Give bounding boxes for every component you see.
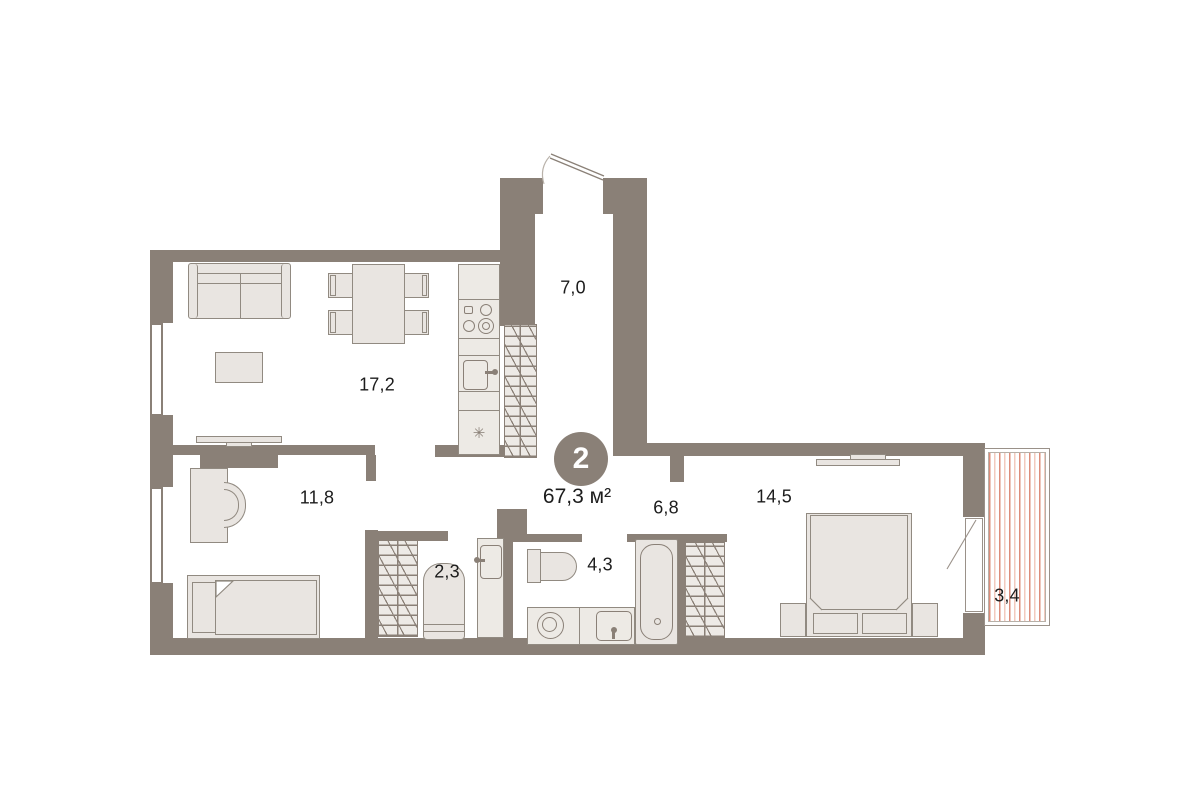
washing-machine-drum-inner — [542, 617, 557, 632]
chair-backrest — [330, 275, 336, 296]
bed-double-duvet — [810, 515, 908, 610]
sofa-arm-right — [281, 264, 290, 318]
wardrobe-corridor — [685, 542, 725, 638]
tv-bedroom — [816, 459, 900, 466]
wall-room2-door-stub — [366, 455, 376, 481]
kitchen-sink-bowl — [463, 360, 488, 390]
kitchen-counter-low — [458, 391, 500, 412]
wall-storage-bath-divider — [504, 533, 513, 638]
dining-chair-1 — [328, 273, 353, 298]
kitchen-counter-top — [458, 264, 500, 301]
wall-left-bottom — [150, 583, 173, 638]
tv-living-stand — [226, 442, 252, 447]
wardrobe-hall — [504, 324, 537, 458]
wall-living-divider — [150, 445, 375, 455]
sofa-arm-left — [189, 264, 198, 318]
label-bathroom: 4,3 — [587, 555, 613, 576]
stove-burner-1 — [464, 306, 473, 314]
total-area-label: 67,3 м² — [543, 485, 611, 509]
chair-backrest — [422, 275, 428, 296]
bathroom-sink — [596, 611, 632, 641]
fridge: ✳ — [458, 410, 500, 455]
bathroom-sink-faucet-knob — [611, 627, 617, 633]
bath-counter-divider — [579, 608, 580, 644]
sofa — [188, 263, 291, 319]
kitchen-sink-unit — [458, 355, 500, 393]
bed-pillow-left — [813, 613, 858, 634]
wall-stub-corridor — [670, 456, 684, 482]
label-bedroom-small: 11,8 — [300, 488, 335, 509]
bed-pillow-right — [862, 613, 907, 634]
dining-chair-4 — [404, 310, 429, 335]
wall-living-divider-pier — [200, 455, 278, 468]
toilet-bowl — [540, 552, 577, 581]
water-heater-line-2 — [424, 631, 464, 632]
dining-table — [352, 264, 405, 344]
kitchen-stove — [458, 299, 500, 340]
chair-backrest — [330, 312, 336, 333]
label-entrance-hall: 7,0 — [560, 278, 586, 299]
toilet-tank — [527, 549, 541, 583]
label-balcony: 3,4 — [994, 586, 1020, 607]
stove-burner-3 — [463, 320, 475, 332]
bathtub-inner — [640, 544, 673, 640]
chair-backrest — [422, 312, 428, 333]
rooms-count-badge: 2 — [554, 432, 608, 486]
stove-burner-2 — [480, 304, 492, 316]
wall-entry-jamb-right — [603, 178, 647, 214]
washing-machine-drum — [537, 612, 564, 639]
label-living-kitchen: 17,2 — [359, 375, 395, 396]
bathtub — [635, 539, 678, 645]
balcony-door — [965, 518, 983, 612]
nightstand-right — [912, 603, 938, 637]
sofa-seat-divider — [240, 273, 241, 318]
entry-door-arc — [542, 156, 550, 184]
wall-entry-jamb-left — [500, 178, 543, 214]
bed-single-mattress — [215, 580, 317, 635]
wall-hall-right — [613, 212, 647, 448]
entry-door-leaf-2 — [550, 158, 603, 180]
dining-chair-3 — [404, 273, 429, 298]
nightstand-left — [780, 603, 806, 637]
window-living — [150, 323, 163, 415]
bathtub-drain — [654, 618, 661, 625]
fridge-snowflake-icon: ✳ — [473, 424, 486, 442]
wall-left-top — [150, 250, 173, 323]
coffee-table — [215, 352, 263, 383]
rooms-count: 2 — [573, 442, 590, 476]
water-heater-line-1 — [424, 624, 464, 625]
wall-top-living — [150, 250, 505, 262]
bathroom-sink-faucet — [612, 632, 615, 639]
wall-hall-left — [500, 212, 535, 326]
window-bedroom-small — [150, 487, 163, 583]
wall-room2-storage-divider — [365, 530, 378, 638]
label-corridor: 6,8 — [653, 498, 679, 519]
entry-door-leaf — [551, 154, 604, 176]
dining-chair-2 — [328, 310, 353, 335]
storage-sink — [480, 545, 502, 579]
stove-burner-4-inner — [482, 322, 490, 330]
thin-line-overlay — [0, 0, 1200, 803]
floor-plan: ✳ — [0, 0, 1200, 803]
wardrobe-storage — [378, 540, 418, 637]
label-bedroom-main: 14,5 — [756, 487, 792, 508]
bed-single-headboard — [192, 582, 216, 633]
wall-top-bedroom — [613, 443, 985, 456]
label-storage: 2,3 — [434, 562, 460, 583]
wall-bath-top-left — [527, 534, 582, 542]
storage-sink-faucet-knob — [474, 557, 480, 563]
wall-bedroom-right-top — [963, 443, 985, 517]
kitchen-sink-faucet-knob — [492, 369, 498, 375]
desk — [190, 468, 228, 543]
